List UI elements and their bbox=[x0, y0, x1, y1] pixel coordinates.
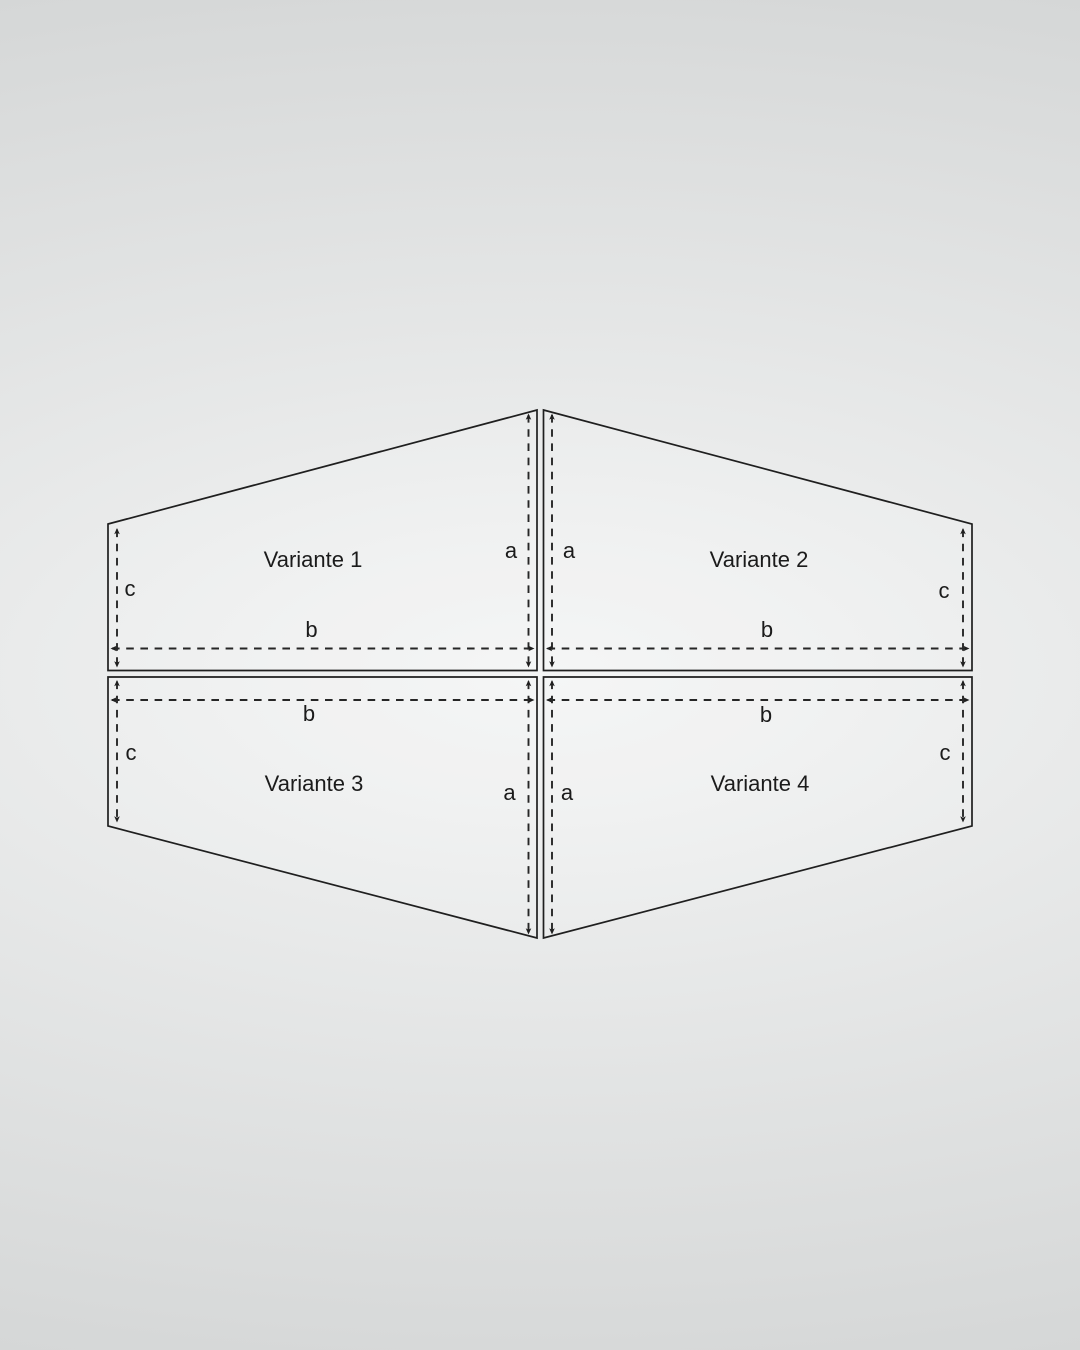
svg-text:a: a bbox=[505, 538, 518, 563]
svg-text:Variante 4: Variante 4 bbox=[711, 771, 810, 796]
svg-text:c: c bbox=[125, 576, 136, 601]
svg-text:a: a bbox=[503, 780, 516, 805]
svg-text:Variante 2: Variante 2 bbox=[710, 547, 809, 572]
svg-text:c: c bbox=[940, 740, 951, 765]
svg-text:c: c bbox=[126, 740, 137, 765]
svg-text:a: a bbox=[563, 538, 576, 563]
svg-text:Variante 3: Variante 3 bbox=[265, 771, 364, 796]
svg-text:c: c bbox=[939, 578, 950, 603]
svg-text:Variante 1: Variante 1 bbox=[264, 547, 363, 572]
svg-text:b: b bbox=[303, 701, 315, 726]
svg-text:b: b bbox=[760, 702, 772, 727]
svg-text:b: b bbox=[305, 617, 317, 642]
svg-text:b: b bbox=[761, 617, 773, 642]
svg-text:a: a bbox=[561, 780, 574, 805]
